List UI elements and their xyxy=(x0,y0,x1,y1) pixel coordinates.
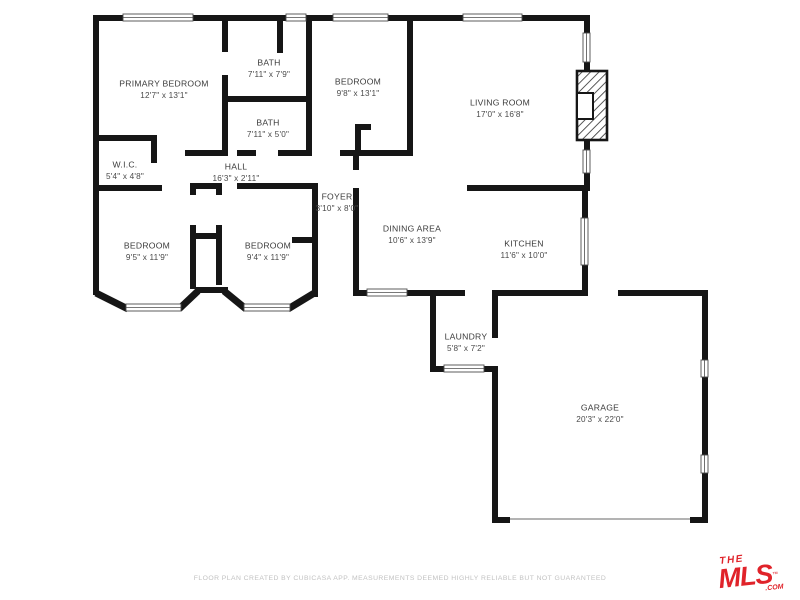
wall xyxy=(190,183,196,195)
wall xyxy=(388,15,463,21)
wall xyxy=(492,290,498,338)
room-dims: 5'8" x 7'2" xyxy=(447,344,485,353)
wall xyxy=(222,75,228,156)
wall xyxy=(702,290,708,360)
wall xyxy=(702,473,708,523)
room-dims: 10'6" x 13'9" xyxy=(388,236,436,245)
wall xyxy=(618,290,708,296)
bay-wall xyxy=(288,292,316,309)
wall xyxy=(93,15,99,295)
room-label: BATH xyxy=(256,117,279,127)
room-dims: 7'11" x 5'0" xyxy=(247,130,289,139)
wall xyxy=(407,290,430,296)
wall xyxy=(193,15,286,21)
wall xyxy=(492,290,588,296)
room-dims: 20'3" x 22'0" xyxy=(576,415,624,424)
room-label: LIVING ROOM xyxy=(470,97,530,107)
wall xyxy=(222,21,228,52)
wall xyxy=(237,183,318,189)
wall xyxy=(584,15,590,33)
room-label: HALL xyxy=(225,161,248,171)
wall xyxy=(702,377,708,455)
room-label: BEDROOM xyxy=(245,240,291,250)
wall xyxy=(690,517,708,523)
wall xyxy=(292,237,312,243)
bay-wall xyxy=(179,291,198,309)
wall xyxy=(278,150,310,156)
room-dims: 12'7" x 13'1" xyxy=(140,91,188,100)
room-dims: 11'6" x 10'0" xyxy=(501,251,548,260)
wall xyxy=(312,185,318,297)
room-dims: 7'11" x 7'9" xyxy=(248,70,290,79)
room-dims: 17'0" x 16'8" xyxy=(476,110,524,119)
wall xyxy=(306,15,312,156)
wall xyxy=(584,140,590,150)
room-dims: 3'10" x 8'0" xyxy=(316,204,359,213)
wall xyxy=(492,366,498,523)
disclaimer-text: FLOOR PLAN CREATED BY CUBICASA APP. MEAS… xyxy=(0,575,800,582)
wall xyxy=(582,191,588,218)
logo-trademark: ™ xyxy=(772,572,779,579)
room-label: BATH xyxy=(257,57,280,67)
floor-plan-page: PRIMARY BEDROOM12'7" x 13'1"BATH7'11" x … xyxy=(0,0,800,600)
wall xyxy=(407,15,413,155)
room-label: DINING AREA xyxy=(383,223,441,233)
room-dims: 5'4" x 4'8" xyxy=(106,172,144,181)
room-label: KITCHEN xyxy=(504,238,543,248)
wall xyxy=(277,21,283,53)
wall xyxy=(522,15,590,21)
wall xyxy=(93,135,157,141)
room-dims: 9'4" x 11'9" xyxy=(247,253,289,262)
wall xyxy=(355,124,371,130)
fireplace-hearth xyxy=(577,93,593,119)
wall xyxy=(436,290,465,296)
room-dims: 9'8" x 13'1" xyxy=(337,89,380,98)
room-label: GARAGE xyxy=(581,402,619,412)
room-dims: 16'3" x 2'11" xyxy=(213,174,260,183)
wall xyxy=(93,185,162,191)
floor-plan-drawing: PRIMARY BEDROOM12'7" x 13'1"BATH7'11" x … xyxy=(0,0,800,600)
room-dims: 9'5" x 11'9" xyxy=(126,253,168,262)
bay-wall xyxy=(96,293,128,309)
wall xyxy=(340,150,413,156)
wall xyxy=(227,96,312,102)
wall xyxy=(237,150,256,156)
room-label: LAUNDRY xyxy=(445,331,488,341)
bay-wall xyxy=(224,291,246,309)
room-label: BEDROOM xyxy=(124,240,170,250)
room-label: BEDROOM xyxy=(335,76,381,86)
wall xyxy=(185,150,222,156)
wall xyxy=(353,237,359,293)
themls-logo: THE MLS™ .COM xyxy=(716,551,782,597)
wall xyxy=(216,183,222,195)
room-label: PRIMARY BEDROOM xyxy=(119,78,208,88)
wall xyxy=(353,151,359,170)
wall xyxy=(151,135,157,163)
wall xyxy=(492,517,510,523)
room-label: W.I.C. xyxy=(113,159,138,169)
wall xyxy=(190,233,222,239)
wall xyxy=(467,185,588,191)
wall xyxy=(430,290,436,372)
room-label: FOYER xyxy=(322,191,353,201)
wall xyxy=(353,290,367,296)
